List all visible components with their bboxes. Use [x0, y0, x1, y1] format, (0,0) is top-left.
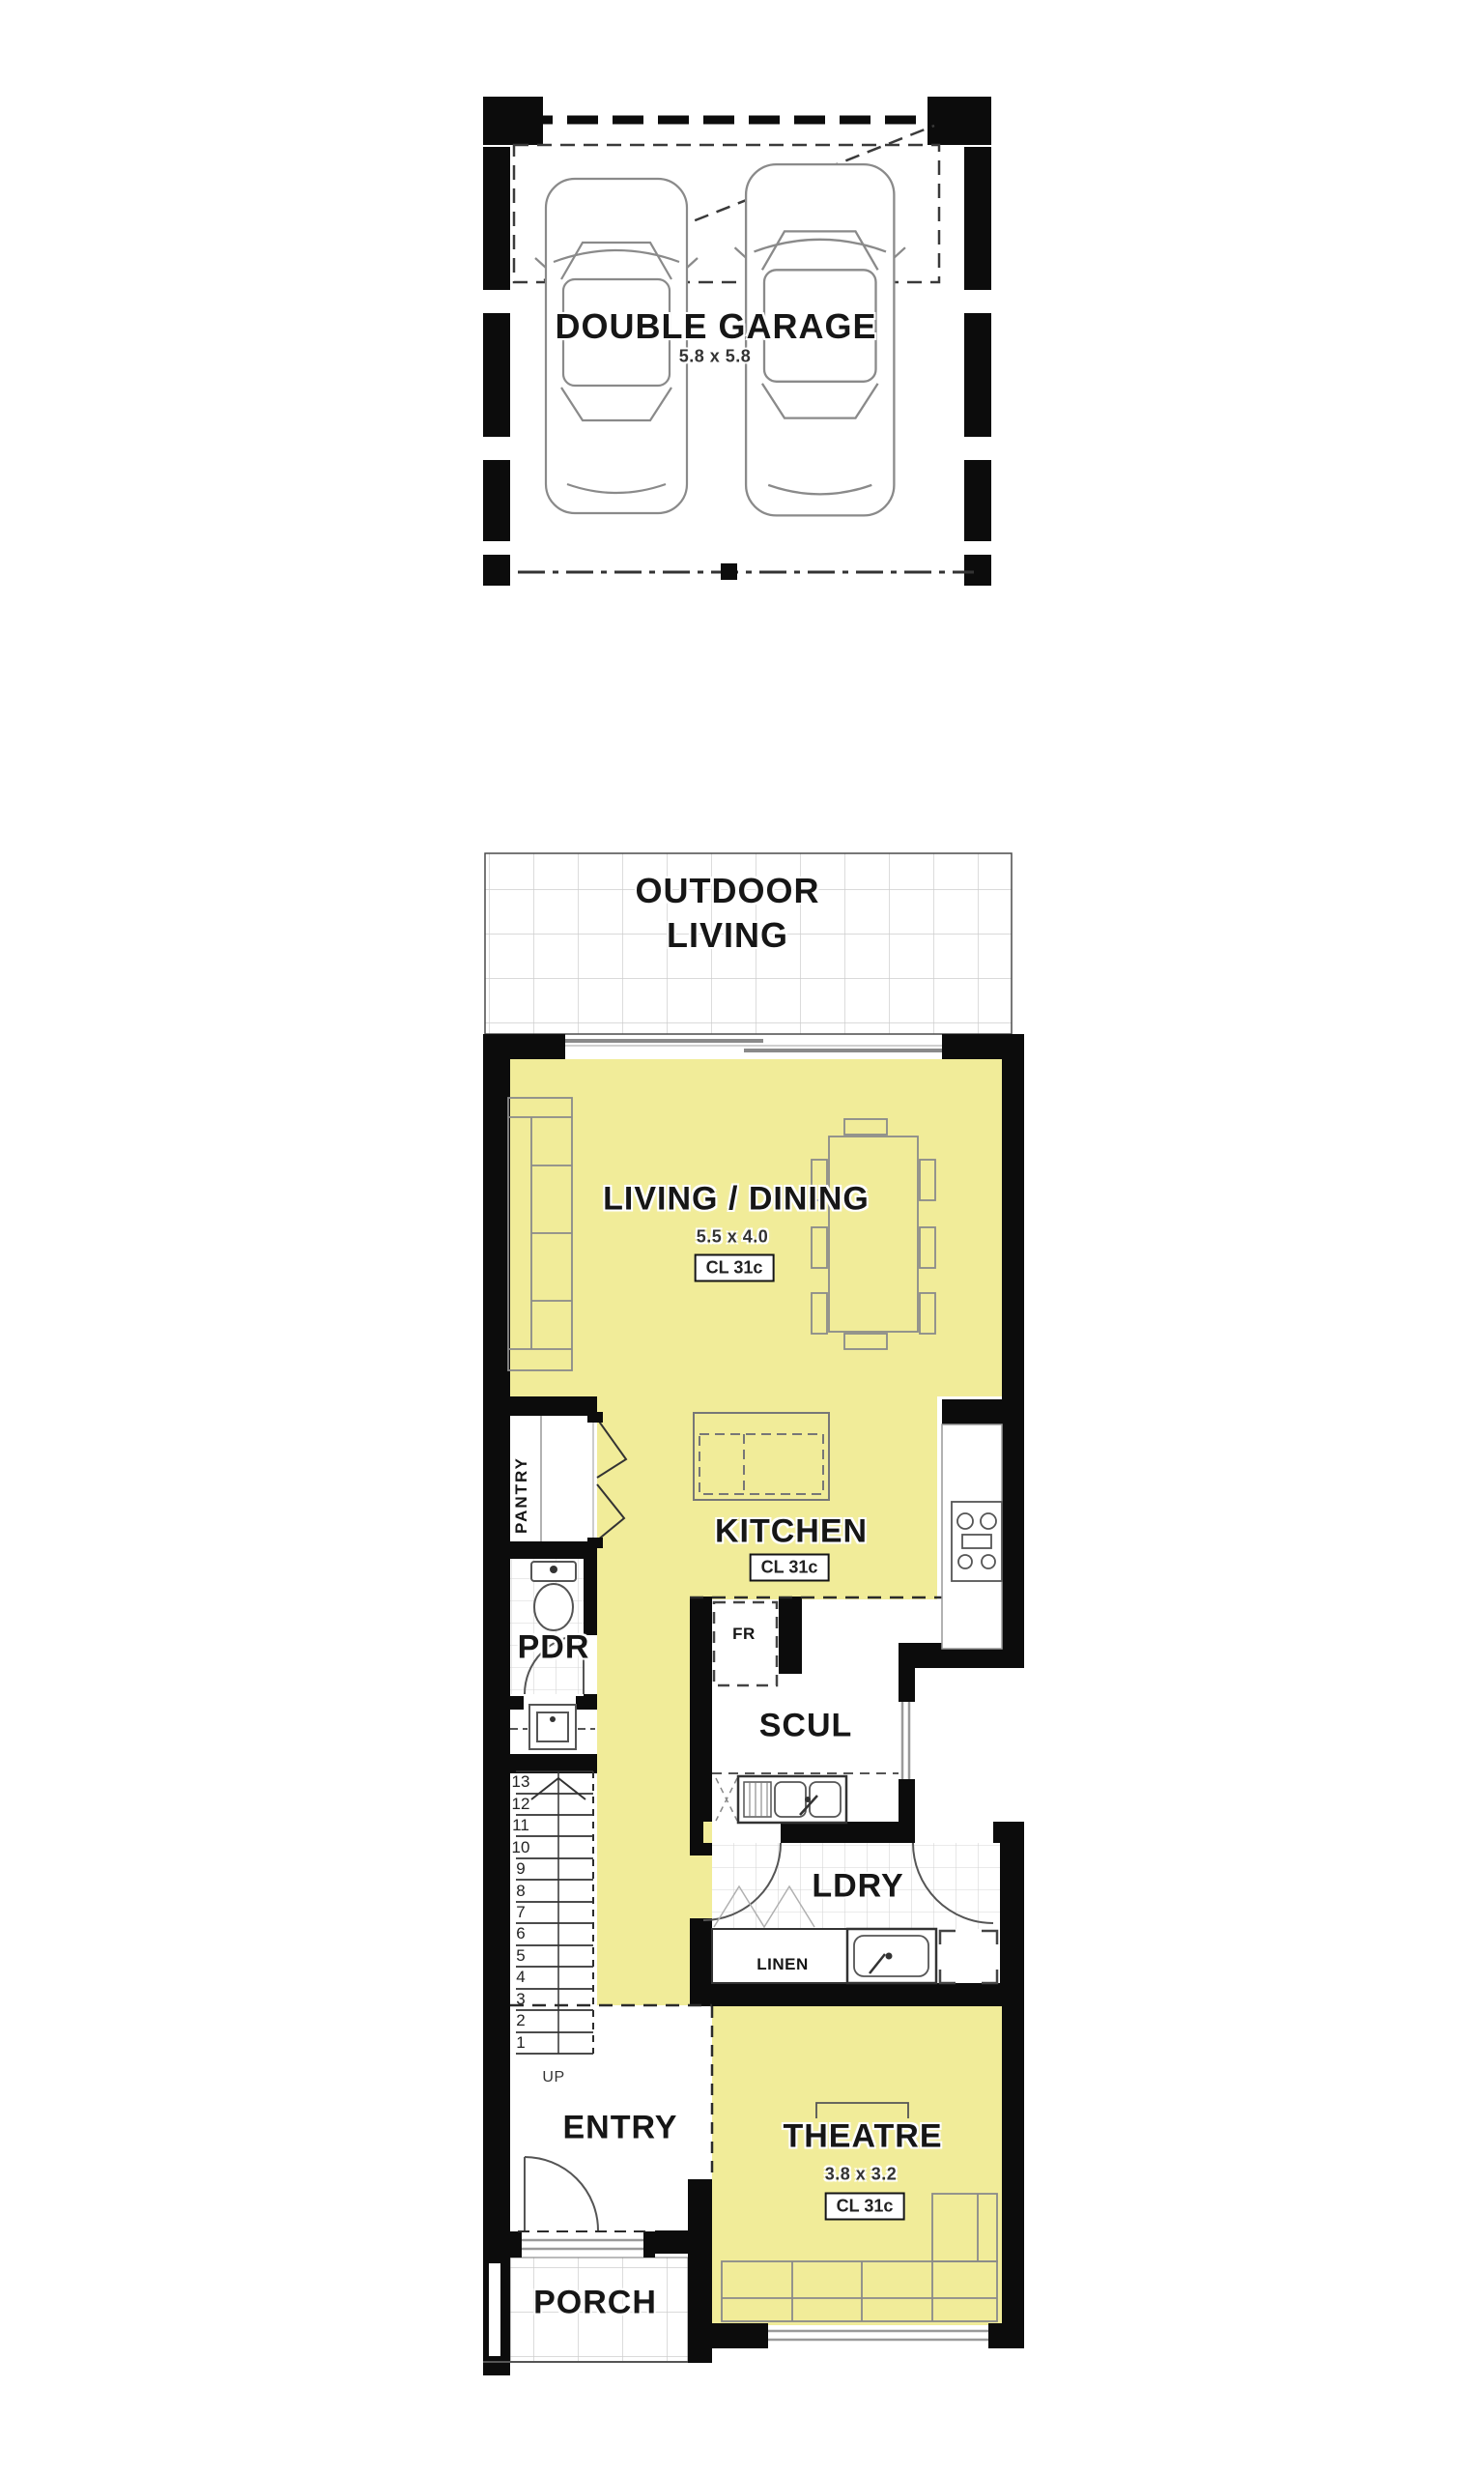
stair-tread-number: 13 — [504, 1772, 537, 1792]
stair-tread-number: 11 — [504, 1816, 537, 1835]
stairs-up-label: UP — [542, 2069, 564, 2086]
outdoor-living-label: OUTDOOR LIVING — [636, 869, 820, 958]
stair-tread-number: 8 — [504, 1882, 537, 1901]
floor-plan-page: { "document": {"type": "residential floo… — [0, 0, 1484, 2474]
garage-pier — [721, 563, 737, 580]
living-dining-dimensions: 5.5 x 4.0 — [697, 1227, 769, 1248]
scullery-label: SCUL — [759, 1708, 853, 1745]
fridge-label: FR — [732, 1625, 756, 1644]
pantry-label: PANTRY — [512, 1456, 531, 1534]
stair-tread-number: 1 — [504, 2033, 537, 2053]
living-dining-ceiling-height: CL 31c — [695, 1254, 775, 1282]
stair-tread-number: 10 — [504, 1838, 537, 1857]
stair-tread-number: 7 — [504, 1903, 537, 1922]
vanity-basin-icon — [529, 1705, 576, 1749]
stair-tread-number: 2 — [504, 2011, 537, 2030]
laundry-label: LDRY — [812, 1868, 903, 1906]
theatre-dimensions: 3.8 x 3.2 — [825, 2165, 898, 2185]
garage-dimensions: 5.8 x 5.8 — [679, 347, 752, 367]
powder-room-label: PDR — [518, 1629, 590, 1667]
scullery-sink-icon — [716, 1776, 846, 1823]
stair-tread-number: 3 — [504, 1990, 537, 2009]
stair-tread-number: 5 — [504, 1946, 537, 1966]
stair-tread-number: 9 — [504, 1859, 537, 1879]
porch-label: PORCH — [533, 2285, 657, 2322]
living-dining-label: LIVING / DINING — [603, 1181, 870, 1219]
toilet-icon — [531, 1562, 576, 1630]
stair-tread-number: 6 — [504, 1924, 537, 1943]
stair-tread-number: 4 — [504, 1968, 537, 1987]
stove-icon — [952, 1502, 1002, 1581]
stair-tread-number: 12 — [504, 1795, 537, 1814]
kitchen-label: KITCHEN — [715, 1513, 868, 1551]
entry-label: ENTRY — [563, 2110, 678, 2147]
washer-space-dashed — [940, 1931, 997, 1983]
linen-label: LINEN — [756, 1955, 809, 1974]
kitchen-ceiling-height: CL 31c — [750, 1554, 830, 1582]
ground-floor-plan — [483, 853, 1024, 2375]
theatre-ceiling-height: CL 31c — [825, 2193, 905, 2221]
porch-pier-gap — [489, 2263, 500, 2356]
sliding-door — [565, 1041, 942, 1050]
garage-label: DOUBLE GARAGE — [555, 306, 876, 347]
theatre-label: THEATRE — [783, 2118, 942, 2156]
fridge-space — [714, 1602, 777, 1685]
